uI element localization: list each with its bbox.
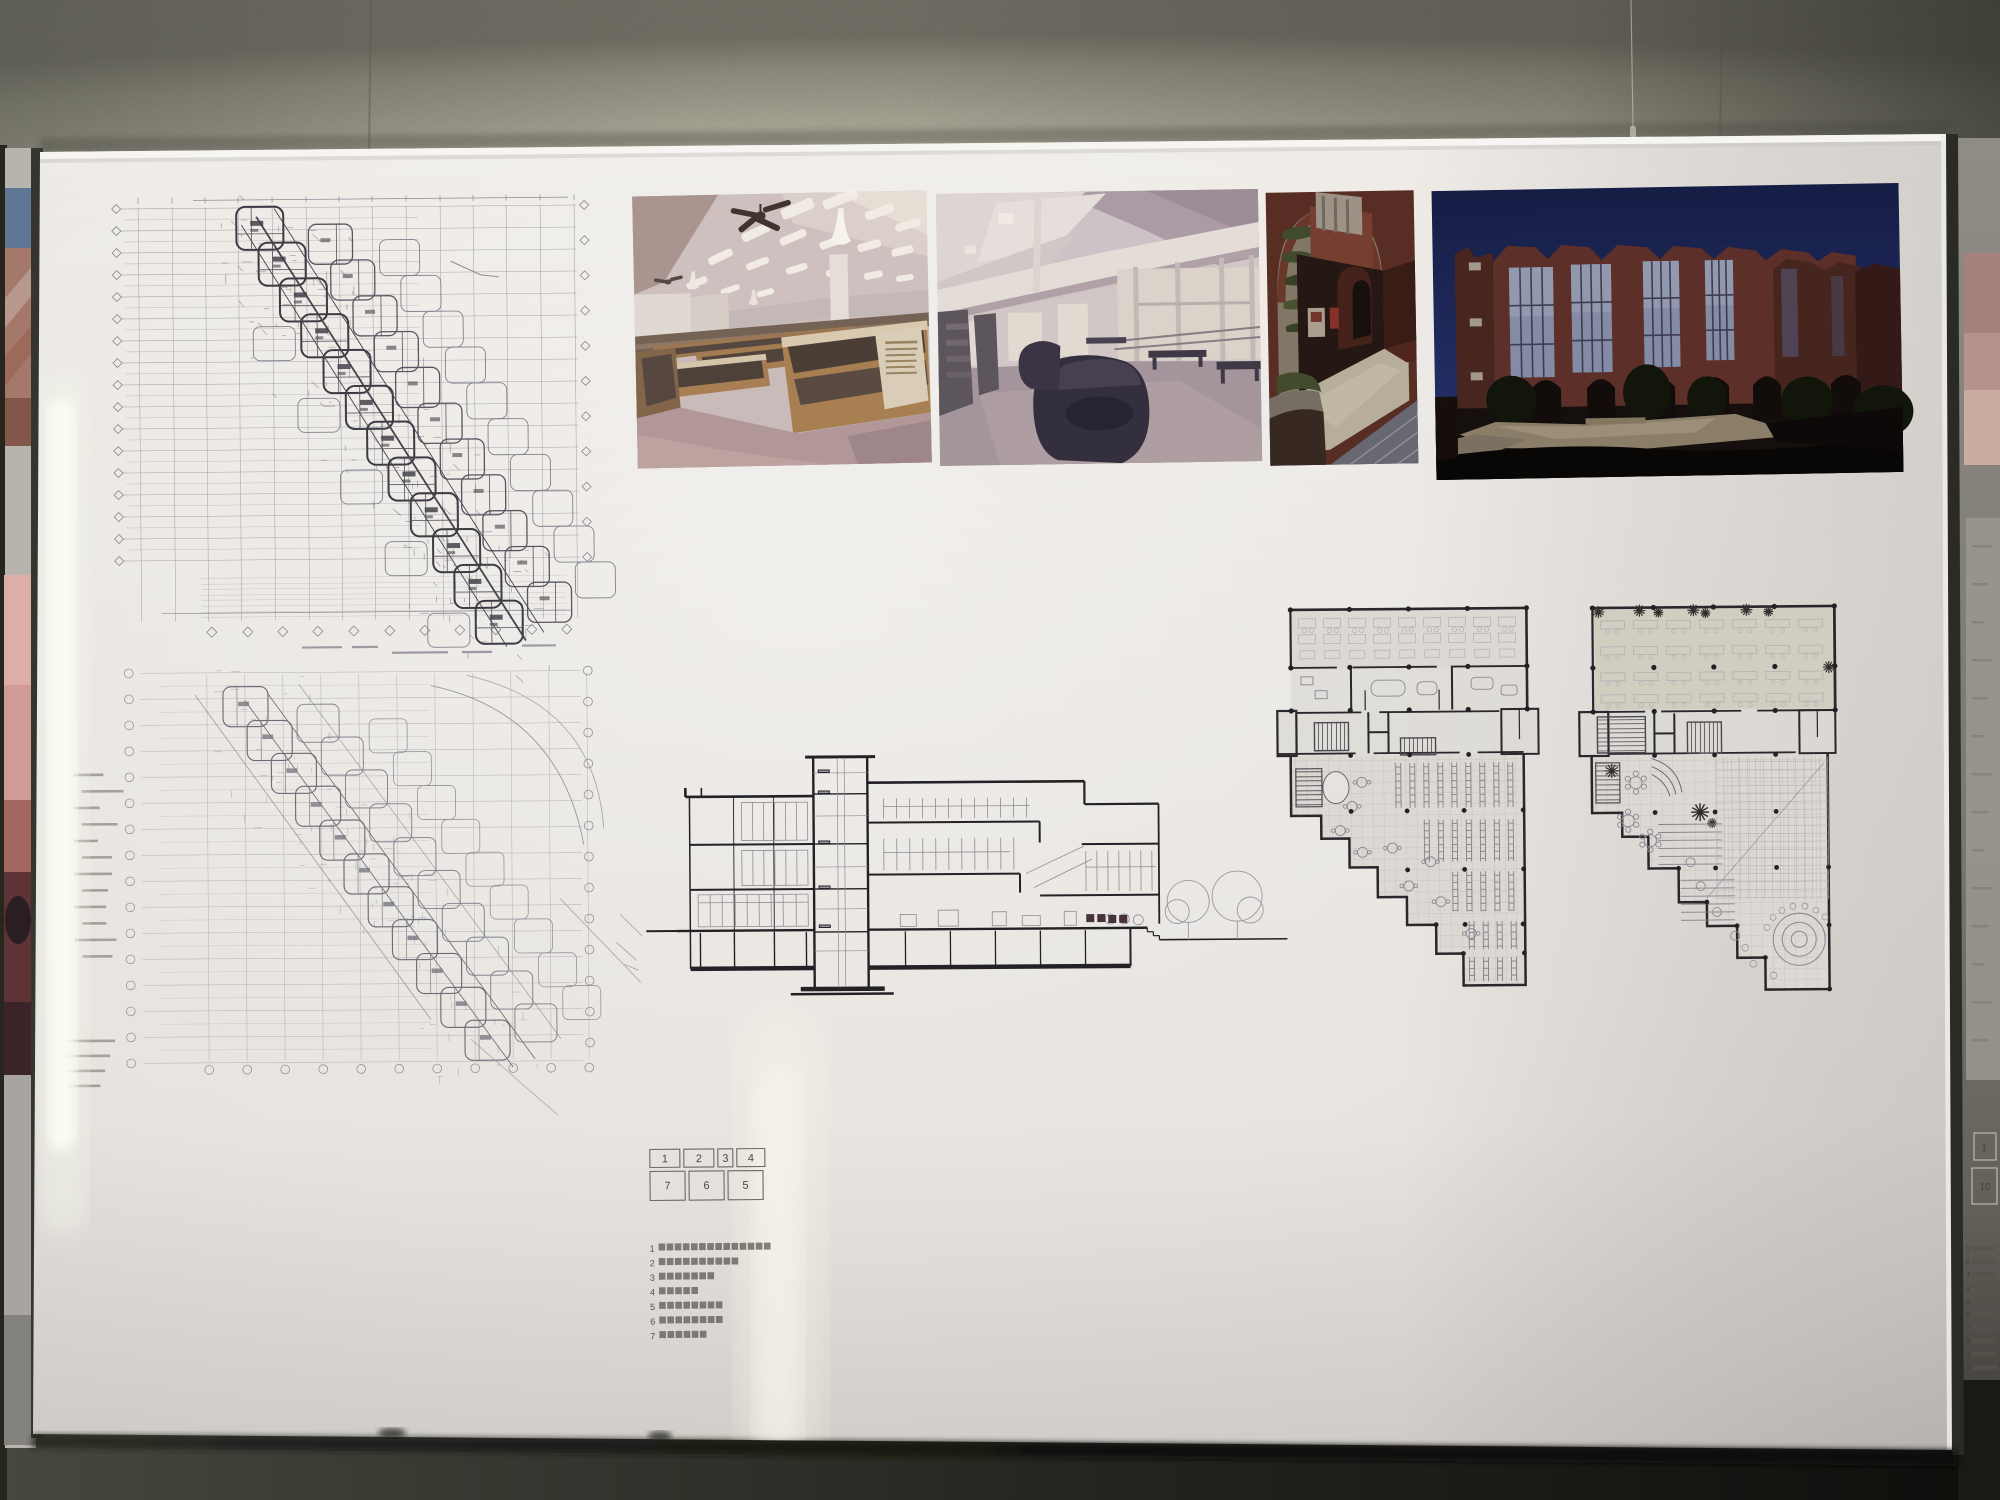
svg-text:6: 6 — [650, 1317, 655, 1327]
svg-text:1: 1 — [1981, 1143, 1987, 1154]
svg-text:5: 5 — [742, 1180, 748, 1192]
svg-text:1: 1 — [650, 1244, 655, 1254]
svg-text:2: 2 — [650, 1258, 655, 1268]
svg-text:8: 8 — [1966, 1338, 1970, 1345]
svg-text:3: 3 — [650, 1273, 655, 1283]
svg-text:1: 1 — [662, 1153, 668, 1165]
svg-text:7: 7 — [664, 1180, 670, 1192]
svg-text:3: 3 — [722, 1153, 728, 1165]
svg-text:1: 1 — [1966, 1246, 1970, 1253]
svg-text:7: 7 — [1966, 1325, 1970, 1332]
svg-text:9: 9 — [1966, 1352, 1970, 1359]
svg-text:4: 4 — [748, 1153, 754, 1165]
svg-text:2: 2 — [696, 1153, 702, 1165]
svg-text:4: 4 — [1966, 1286, 1970, 1293]
svg-text:6: 6 — [1966, 1312, 1970, 1319]
svg-text:6: 6 — [703, 1180, 709, 1192]
svg-text:10: 10 — [1979, 1182, 1991, 1193]
svg-text:5: 5 — [1966, 1299, 1970, 1306]
svg-text:3: 3 — [1966, 1272, 1970, 1279]
svg-text:4: 4 — [650, 1287, 655, 1297]
svg-text:7: 7 — [650, 1331, 655, 1341]
svg-text:5: 5 — [650, 1302, 655, 1312]
svg-text:2: 2 — [1966, 1259, 1970, 1266]
